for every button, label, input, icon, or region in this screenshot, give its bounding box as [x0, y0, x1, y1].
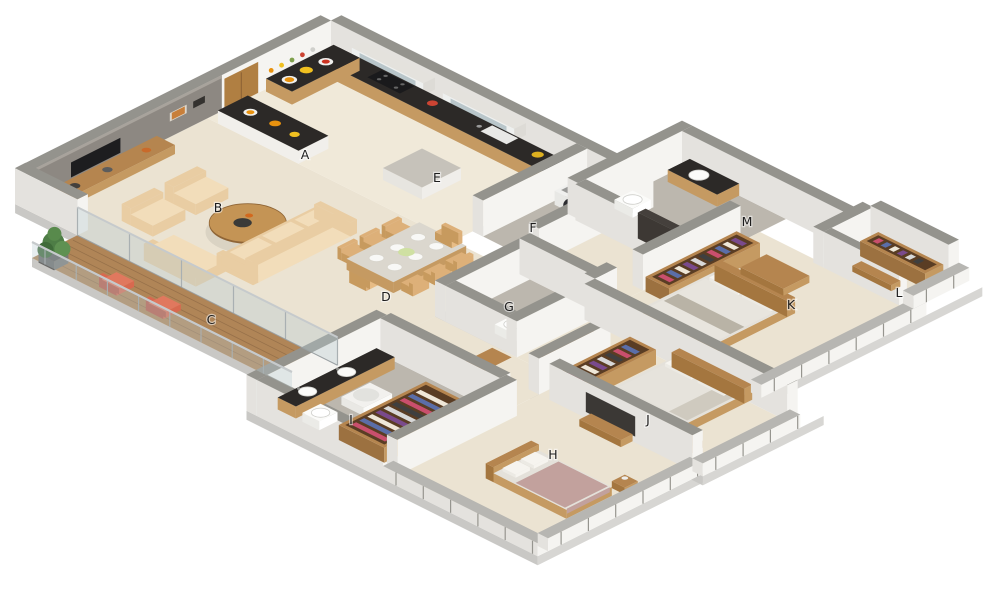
room-label-master-bedroom: K — [787, 297, 796, 312]
room-label-bedroom-2: J — [645, 412, 650, 427]
room-label-bedroom-3: H — [548, 447, 557, 462]
room-label-dining-area: D — [381, 289, 391, 304]
room-label-kitchen: E — [433, 170, 441, 185]
room-label-dressing-room: L — [896, 285, 903, 300]
room-label-breakfast-counter: A — [301, 147, 310, 162]
floor-plan-canvas: ABCDEFGHIJKLM — [0, 0, 1000, 600]
room-label-toilet: G — [504, 299, 514, 314]
floor-plan-image: ABCDEFGHIJKLM — [0, 0, 1000, 600]
room-label-utility-laundry: F — [529, 220, 536, 235]
room-label-living-room: B — [214, 200, 223, 215]
room-label-bathroom-dressing: I — [349, 412, 353, 427]
room-label-master-bathroom: M — [742, 214, 753, 229]
room-label-balcony-deck: C — [207, 312, 216, 327]
